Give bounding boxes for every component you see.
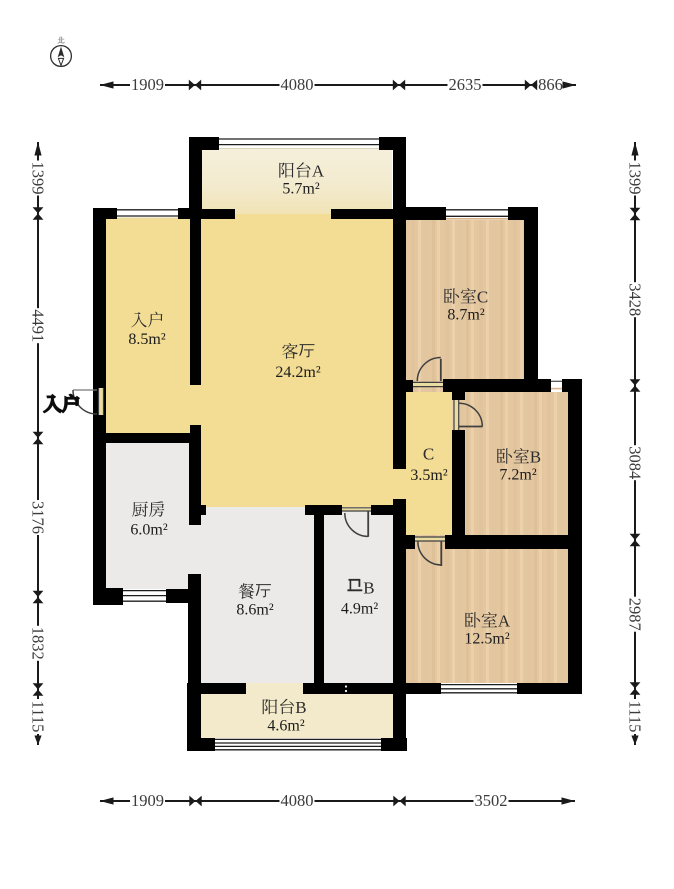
- svg-text:12.5m²: 12.5m²: [464, 631, 509, 648]
- svg-text:4080: 4080: [281, 791, 314, 810]
- svg-text:3428: 3428: [626, 283, 645, 316]
- svg-text:B: B: [295, 698, 306, 717]
- svg-text:A: A: [312, 162, 325, 181]
- svg-text:2987: 2987: [626, 598, 645, 631]
- svg-text:24.2m²: 24.2m²: [275, 364, 320, 381]
- svg-text:4491: 4491: [29, 309, 48, 342]
- svg-text:4.9m²: 4.9m²: [341, 601, 378, 618]
- svg-text:8.6m²: 8.6m²: [236, 602, 273, 619]
- svg-text:3084: 3084: [626, 446, 645, 479]
- svg-text:1399: 1399: [626, 162, 645, 195]
- svg-text:1909: 1909: [131, 75, 164, 94]
- svg-text:2635: 2635: [449, 75, 482, 94]
- svg-text:1399: 1399: [29, 162, 48, 195]
- svg-text:3.5m²: 3.5m²: [410, 467, 447, 484]
- svg-text:866: 866: [538, 75, 563, 94]
- svg-text:6.0m²: 6.0m²: [130, 522, 167, 539]
- svg-text:8.7m²: 8.7m²: [447, 307, 484, 324]
- svg-text:B: B: [530, 448, 541, 467]
- svg-text:1115: 1115: [29, 701, 48, 733]
- svg-text:4.6m²: 4.6m²: [267, 718, 304, 735]
- svg-text:1909: 1909: [131, 791, 164, 810]
- svg-text:A: A: [498, 612, 511, 631]
- svg-text:5.7m²: 5.7m²: [282, 181, 319, 198]
- svg-text:8.5m²: 8.5m²: [128, 331, 165, 348]
- svg-text:4080: 4080: [281, 75, 314, 94]
- svg-text:7.2m²: 7.2m²: [499, 467, 536, 484]
- svg-text:1832: 1832: [29, 627, 48, 660]
- svg-text:3502: 3502: [475, 791, 508, 810]
- svg-text:3176: 3176: [29, 501, 48, 534]
- svg-text:B: B: [363, 579, 374, 598]
- svg-text:C: C: [477, 288, 488, 307]
- svg-text:C: C: [423, 445, 434, 464]
- svg-text:1115: 1115: [626, 701, 645, 733]
